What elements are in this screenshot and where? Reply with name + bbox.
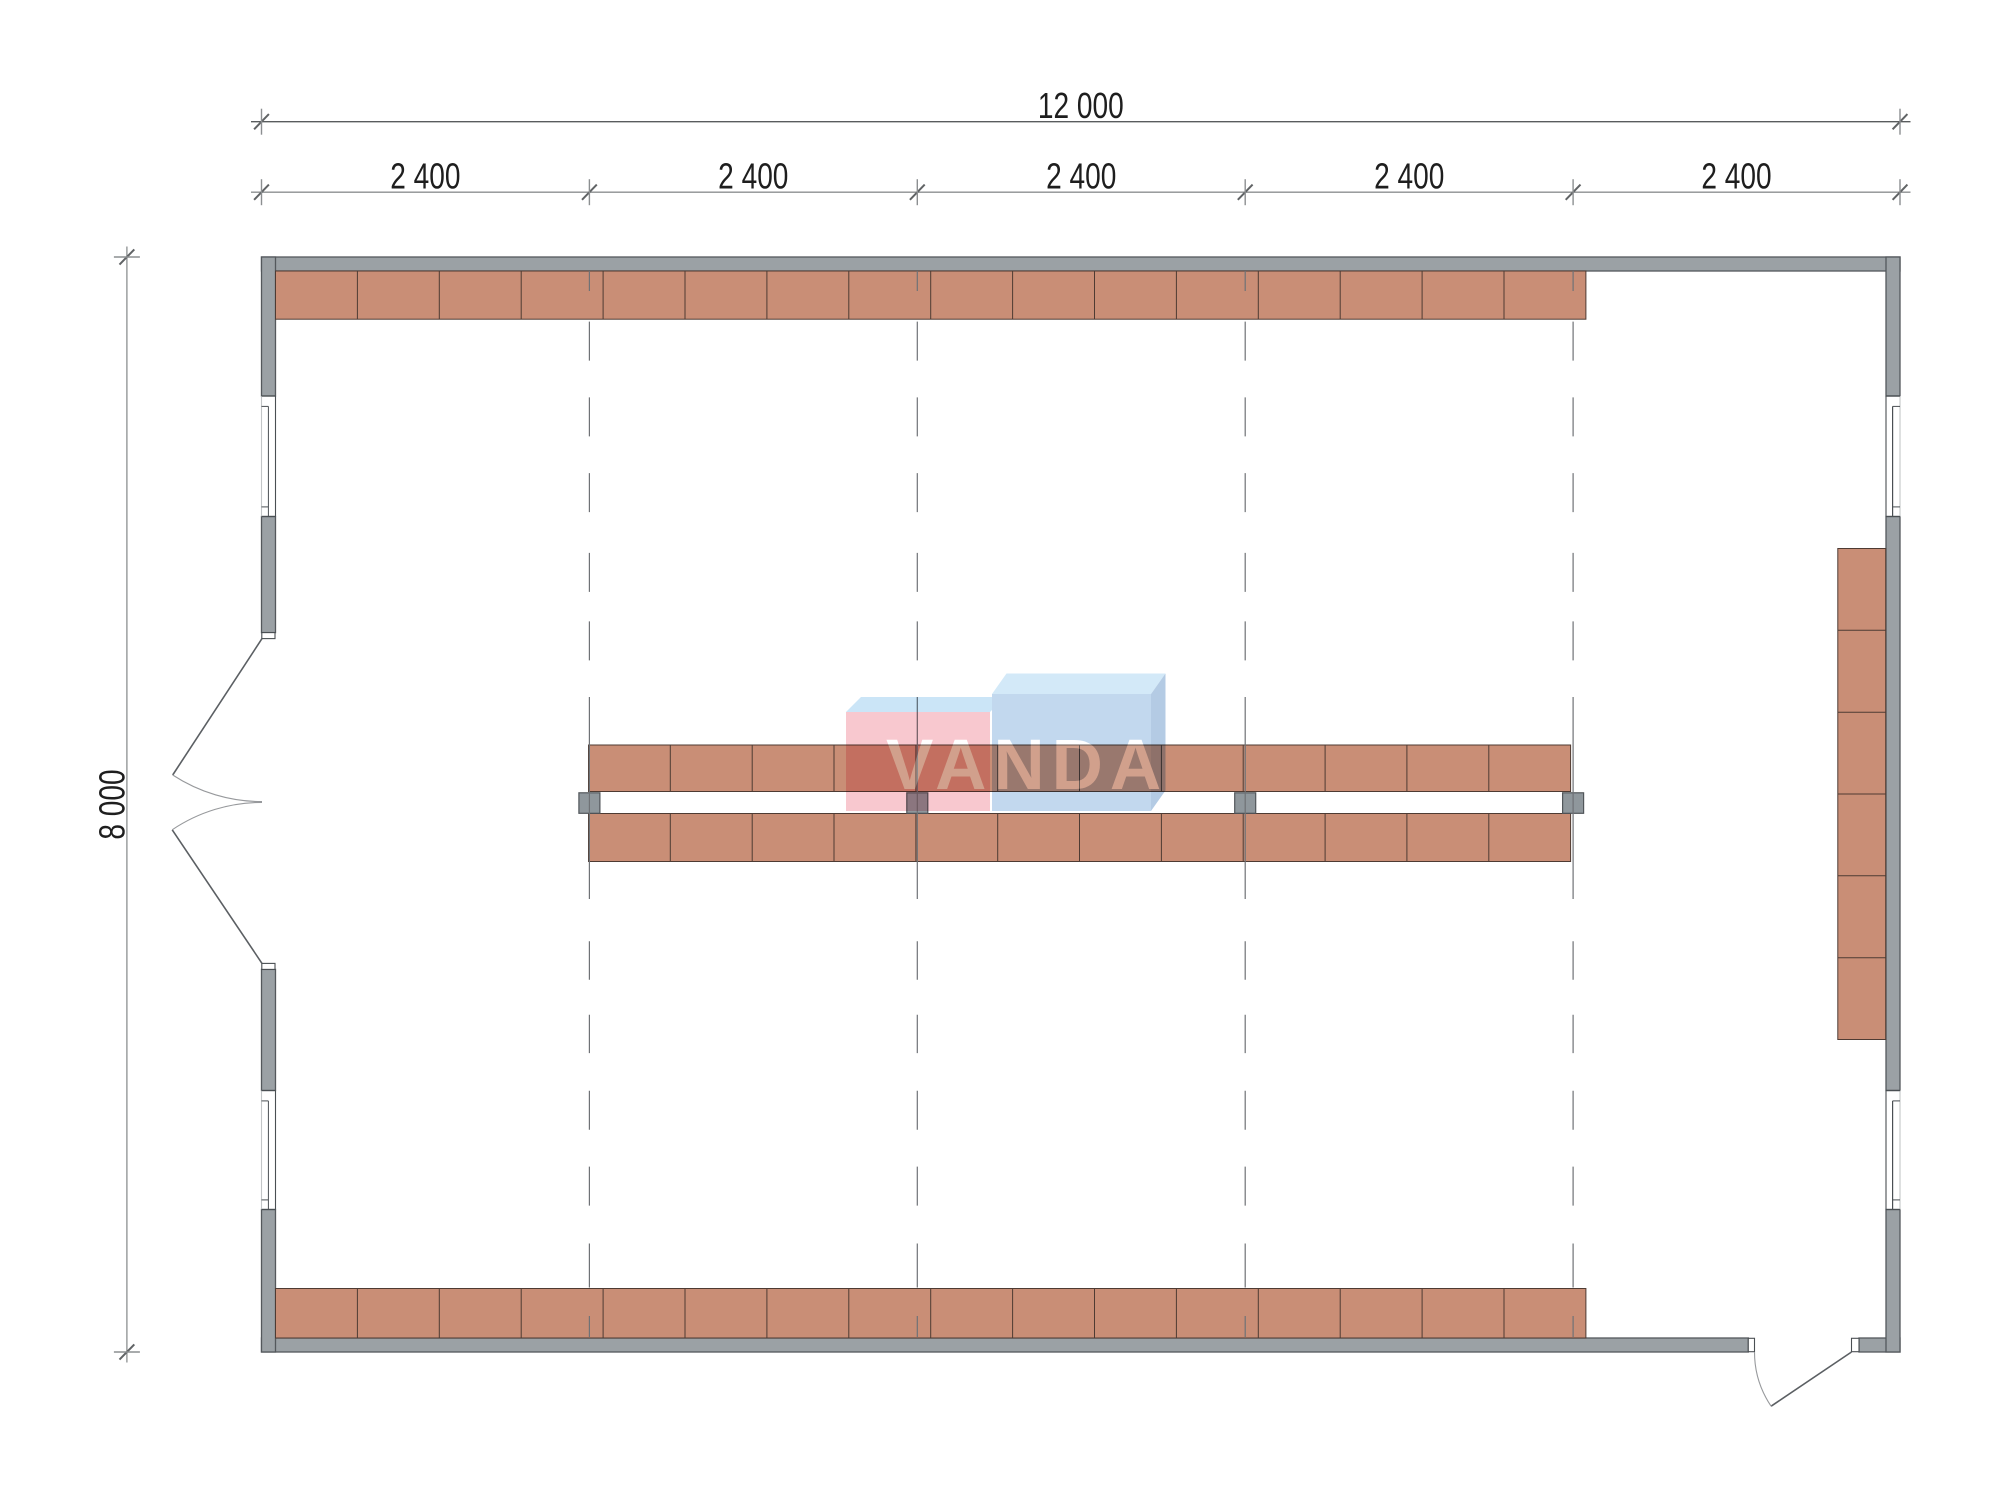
svg-text:2 400: 2 400 — [390, 156, 460, 196]
svg-text:2 400: 2 400 — [1046, 156, 1116, 196]
svg-text:8 000: 8 000 — [92, 769, 132, 839]
svg-text:2 400: 2 400 — [718, 156, 788, 196]
svg-text:2 400: 2 400 — [1374, 156, 1444, 196]
svg-text:VANDA: VANDA — [886, 726, 1168, 805]
svg-text:12 000: 12 000 — [1038, 86, 1124, 126]
svg-text:2 400: 2 400 — [1701, 156, 1771, 196]
